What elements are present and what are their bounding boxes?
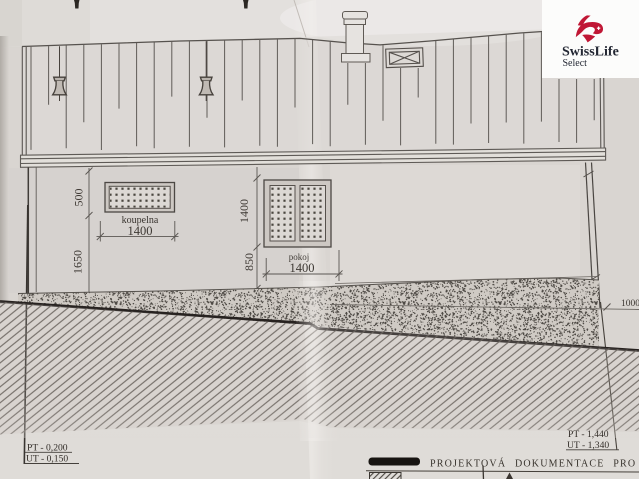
svg-text:UT - 0,150: UT - 0,150 bbox=[26, 454, 68, 465]
svg-text:1400: 1400 bbox=[237, 199, 251, 223]
svg-text:Select: Select bbox=[563, 58, 588, 69]
svg-text:1650: 1650 bbox=[71, 250, 85, 274]
svg-text:PT - 1,440: PT - 1,440 bbox=[568, 429, 609, 440]
svg-text:1400: 1400 bbox=[290, 261, 315, 275]
svg-text:1400: 1400 bbox=[128, 224, 153, 238]
svg-text:PROJEKTOVÁ DOKUMENTACE PRO Č: PROJEKTOVÁ DOKUMENTACE PRO Č bbox=[430, 458, 639, 470]
svg-text:1000: 1000 bbox=[621, 299, 639, 309]
svg-text:850: 850 bbox=[242, 253, 256, 271]
svg-text:500: 500 bbox=[72, 189, 86, 207]
